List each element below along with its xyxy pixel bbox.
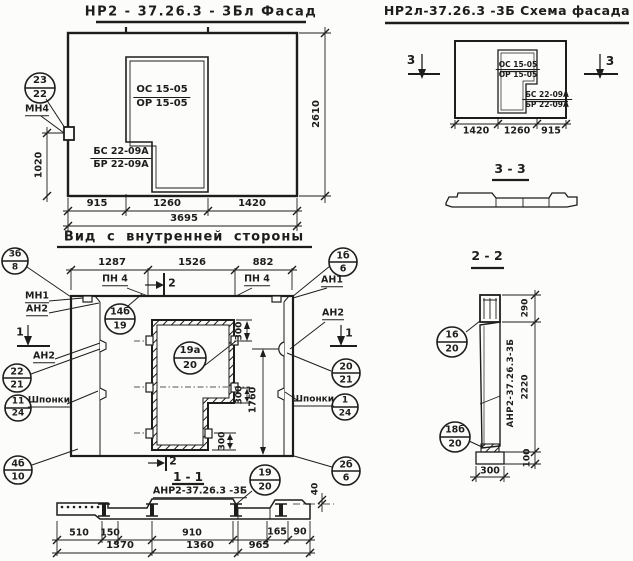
callout-left2-num: 11 [12, 398, 25, 407]
callout-mid-left-num: 14б [110, 307, 130, 317]
drawing-linework [0, 0, 633, 561]
inner-marker-2-top: 2 [168, 278, 176, 289]
s11-dim-165: 165 [267, 527, 287, 537]
facade-dim-1420: 1420 [238, 199, 266, 209]
schema-opening-mark-bottom: ОР 15-05 [496, 70, 540, 79]
callout-bottom-left-den: 10 [11, 472, 24, 482]
schema-opening-mark: ОС 15-05 ОР 15-05 [496, 60, 540, 80]
callout-top-right-den: 6 [340, 264, 347, 274]
callout-bottom-right-den: 6 [343, 473, 350, 483]
facade-opening-mark-top: ОС 15-05 [133, 84, 190, 98]
facade-callout-bottom: 22 [33, 90, 47, 100]
inner-dim-300-1: 300 [236, 322, 245, 341]
schema-dim-1420: 1420 [463, 126, 489, 136]
schema-dim-915: 915 [541, 126, 561, 136]
facade-connector-label: МН4 [25, 104, 49, 116]
callout-right2-num: 1 [342, 397, 348, 406]
technical-drawing-sheet: НР2 - 37.26.3 - 3Бл Фасад 23 22 МН4 ОС 1… [0, 0, 633, 561]
inner-label-an2-c: АН2 [322, 308, 344, 320]
s22-dim-290: 290 [522, 299, 531, 318]
callout-left1-den: 21 [10, 380, 23, 390]
section-1-1-marker: 2 [169, 456, 177, 467]
callout-left1-num: 22 [10, 367, 23, 377]
facade-opening-mark-bottom: ОР 15-05 [133, 98, 190, 111]
facade-block-mark-top: БС 22-09А [90, 146, 151, 159]
s11-dim-1360: 1360 [186, 541, 214, 551]
callout-opening-num: 19а [180, 346, 201, 356]
schema-opening-mark-top: ОС 15-05 [496, 60, 540, 70]
s11-dim-965: 965 [249, 541, 270, 551]
inner-label-an2-a: АН2 [26, 304, 48, 316]
schema-block-mark: БС 22-09А БР 22-09А [522, 90, 572, 110]
inner-label-shponki-right: Шпонки [292, 396, 334, 407]
inner-dim-300-2: 300 [236, 386, 245, 405]
callout-left2-den: 24 [12, 410, 25, 419]
s11-dim-910: 910 [182, 528, 202, 538]
s11-dim-150: 150 [100, 528, 120, 538]
section-3-3-title: 3 - 3 [494, 163, 525, 176]
callout-bottom-right-num: 2б [339, 460, 352, 470]
inner-view-title: Вид с внутренней стороны [64, 231, 304, 244]
inner-dim-1760: 1760 [248, 387, 258, 413]
s22-callout-top-num: 16 [445, 330, 458, 340]
schema-dim-1260: 1260 [504, 126, 530, 136]
facade-dim-left: 1020 [34, 152, 44, 178]
callout-top-right-num: 1б [336, 251, 349, 261]
inner-label-an1: АН1 [321, 275, 343, 287]
s11-dim-90: 90 [293, 527, 306, 537]
facade-dim-right: 2610 [312, 100, 322, 128]
inner-pn4-left: ПН 4 [102, 274, 128, 286]
section-2-2-title: 2 - 2 [471, 250, 502, 263]
section-1-1-label: АНР2-37.26.3 -3Б [153, 486, 247, 498]
s11-dim-40: 40 [312, 483, 321, 496]
s11-callout-den: 20 [258, 482, 271, 492]
schema-block-mark-bottom: БР 22-09А [522, 100, 572, 109]
s22-callout-bot-den: 20 [448, 439, 461, 449]
inner-pn4-right: ПН 4 [244, 274, 270, 286]
inner-label-shponki-left: Шпонки [28, 397, 70, 408]
facade-dim-total: 3695 [170, 214, 198, 224]
inner-marker-1-left: 1 [16, 327, 24, 338]
facade-block-mark-bottom: БР 22-09А [90, 159, 151, 171]
s22-callout-top-den: 20 [445, 344, 458, 354]
callout-mid-left-den: 19 [113, 321, 126, 331]
inner-dim-882: 882 [253, 258, 274, 268]
facade-dim-915: 915 [87, 199, 108, 209]
inner-dim-1526: 1526 [178, 258, 206, 268]
facade-title: НР2 - 37.26.3 - 3Бл Фасад [85, 6, 318, 19]
s22-panel-label: АНР2-37.26.3-3Б [507, 339, 516, 428]
s22-dim-2220: 2220 [522, 374, 531, 399]
schema-block-mark-top: БС 22-09А [522, 90, 572, 100]
s22-dim-100: 100 [524, 449, 533, 468]
section-1-1-title: 1 - 1 [173, 471, 203, 483]
callout-top-left-den: 8 [12, 264, 18, 273]
inner-label-mn1: МН1 [25, 291, 49, 303]
facade-block-mark: БС 22-09А БР 22-09А [90, 146, 151, 171]
s22-callout-bot-num: 18б [445, 425, 465, 435]
inner-dim-1287: 1287 [98, 258, 126, 268]
inner-label-an2-b: АН2 [33, 351, 55, 363]
schema-title: НР2л-37.26.3 -3Б Схема фасада [384, 5, 630, 18]
facade-dim-1260: 1260 [153, 199, 181, 209]
facade-linework [41, 22, 331, 231]
callout-opening-den: 20 [183, 361, 197, 371]
section-3-3-linework [446, 180, 577, 207]
callout-right1-num: 20 [339, 362, 352, 372]
s11-callout-num: 19 [258, 468, 271, 478]
schema-marker-3-right: 3 [606, 55, 614, 67]
inner-view-linework [17, 247, 357, 467]
s22-dim-300: 300 [480, 466, 500, 476]
s11-dim-510: 510 [69, 528, 89, 538]
inner-dim-300-3: 300 [219, 432, 228, 451]
callout-bottom-left-num: 4б [11, 459, 24, 469]
s11-dim-1370: 1370 [106, 541, 134, 551]
callout-right1-den: 21 [339, 375, 352, 385]
callout-top-left-num: 3б [9, 251, 22, 260]
callout-right2-den: 24 [339, 410, 352, 419]
facade-opening-mark: ОС 15-05 ОР 15-05 [133, 84, 190, 110]
inner-marker-1-right: 1 [345, 328, 353, 339]
facade-callout-top: 23 [33, 76, 47, 86]
schema-marker-3-left: 3 [407, 54, 415, 66]
